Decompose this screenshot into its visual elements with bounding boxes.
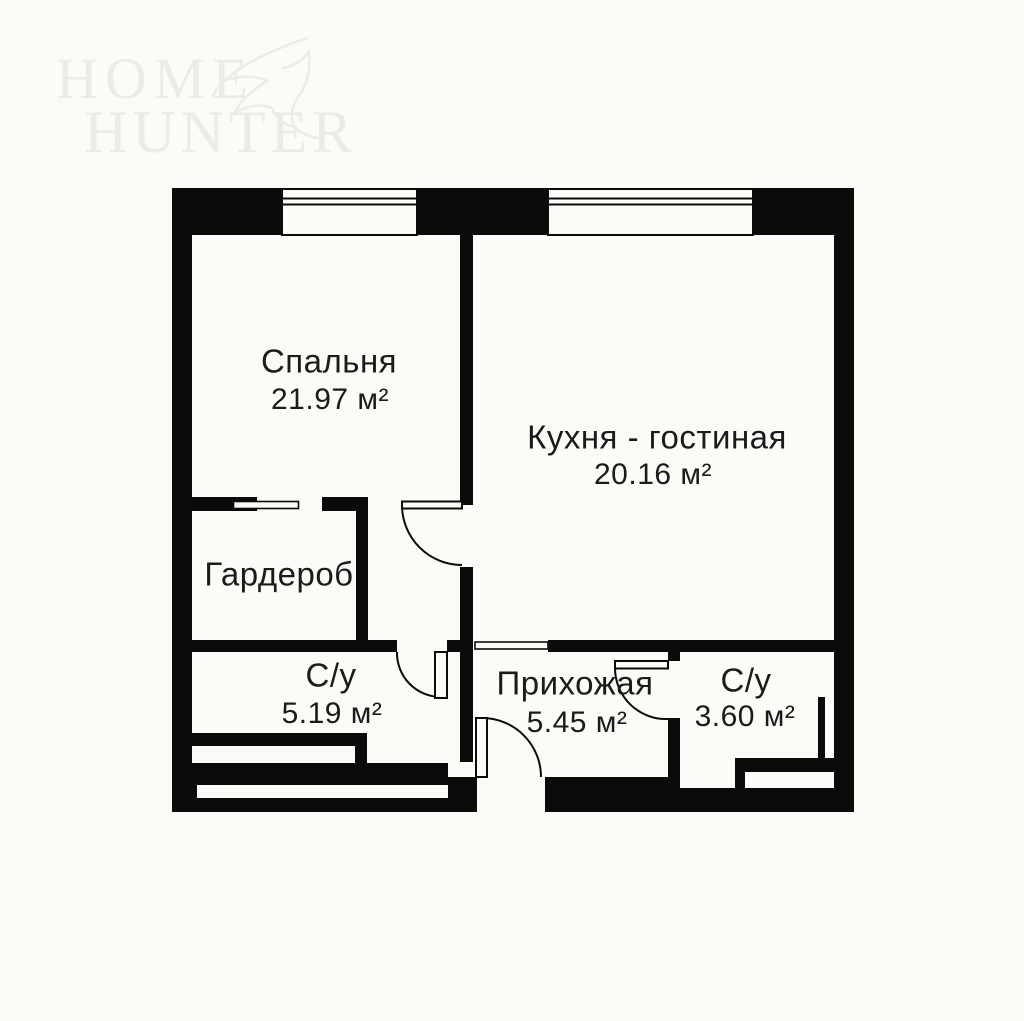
duct-bar-left-connector — [355, 733, 367, 765]
wall-niche-slot — [197, 785, 448, 798]
wall-left — [172, 188, 192, 812]
bathroom-left-name-label: С/у — [306, 659, 357, 692]
duct-bar-left — [192, 733, 367, 746]
wall-right — [834, 188, 854, 812]
wall-bottom-hall — [545, 777, 680, 812]
duct-bar-right-vertical — [818, 697, 825, 760]
door-icon — [402, 502, 462, 566]
wall-bath-left-top — [190, 640, 397, 652]
duct-bar-right-corner — [735, 772, 745, 788]
wall-bottom-bath-right — [668, 788, 854, 812]
bedroom-name-label: Спальня — [261, 345, 397, 378]
door-icon — [397, 652, 447, 698]
hallway-name-label: Прихожая — [497, 667, 654, 700]
bathroom-right-area-label: 3.60 м² — [695, 702, 796, 732]
wall-front-door-jamb — [448, 777, 477, 812]
sliding-door-icon — [234, 502, 299, 509]
wall-wardrobe-right — [356, 497, 368, 640]
opening-icon — [475, 642, 548, 649]
window-icon — [282, 189, 417, 235]
wardrobe-name-label: Гардероб — [204, 558, 353, 591]
wall-divider-lower — [460, 567, 473, 762]
floor-plan — [0, 0, 1024, 1021]
bedroom-area-label: 21.97 м² — [271, 385, 389, 415]
floor-plan-page: HOME HUNTER — [0, 0, 1024, 1021]
bathroom-right-name-label: С/у — [721, 664, 772, 697]
wall-hall-bath-stub — [668, 652, 680, 661]
kitchen-area-label: 20.16 м² — [594, 460, 712, 490]
window-icon — [548, 189, 753, 235]
kitchen-name-label: Кухня - гостиная — [527, 421, 787, 454]
bathroom-left-area-label: 5.19 м² — [282, 699, 383, 729]
hallway-area-label: 5.45 м² — [527, 708, 628, 738]
wall-kitchen-bottom — [548, 640, 834, 652]
wall-bath-left-top-stub — [447, 640, 473, 652]
duct-bar-right-horizontal — [735, 758, 835, 772]
wall-divider-upper — [460, 235, 473, 505]
